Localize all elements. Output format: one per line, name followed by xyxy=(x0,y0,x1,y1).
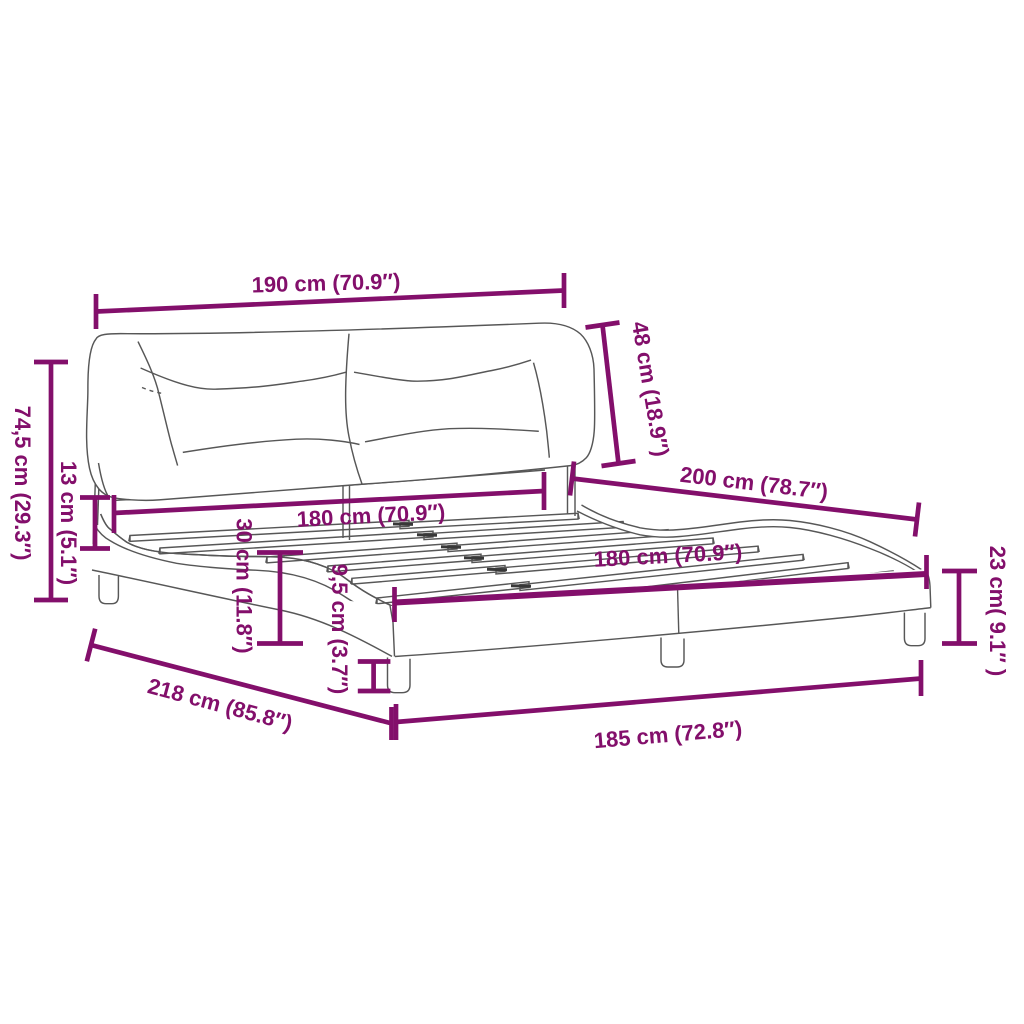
svg-text:23 cm( 9.1″ ): 23 cm( 9.1″ ) xyxy=(985,546,1010,676)
svg-text:9,5 cm (3.7″): 9,5 cm (3.7″) xyxy=(327,564,352,694)
svg-text:13 cm (5.1″): 13 cm (5.1″) xyxy=(56,461,81,585)
svg-text:190 cm (70.9″): 190 cm (70.9″) xyxy=(251,269,400,298)
svg-text:30 cm (11.8″): 30 cm (11.8″) xyxy=(232,518,257,653)
svg-text:74,5 cm (29.3″): 74,5 cm (29.3″) xyxy=(10,406,35,561)
